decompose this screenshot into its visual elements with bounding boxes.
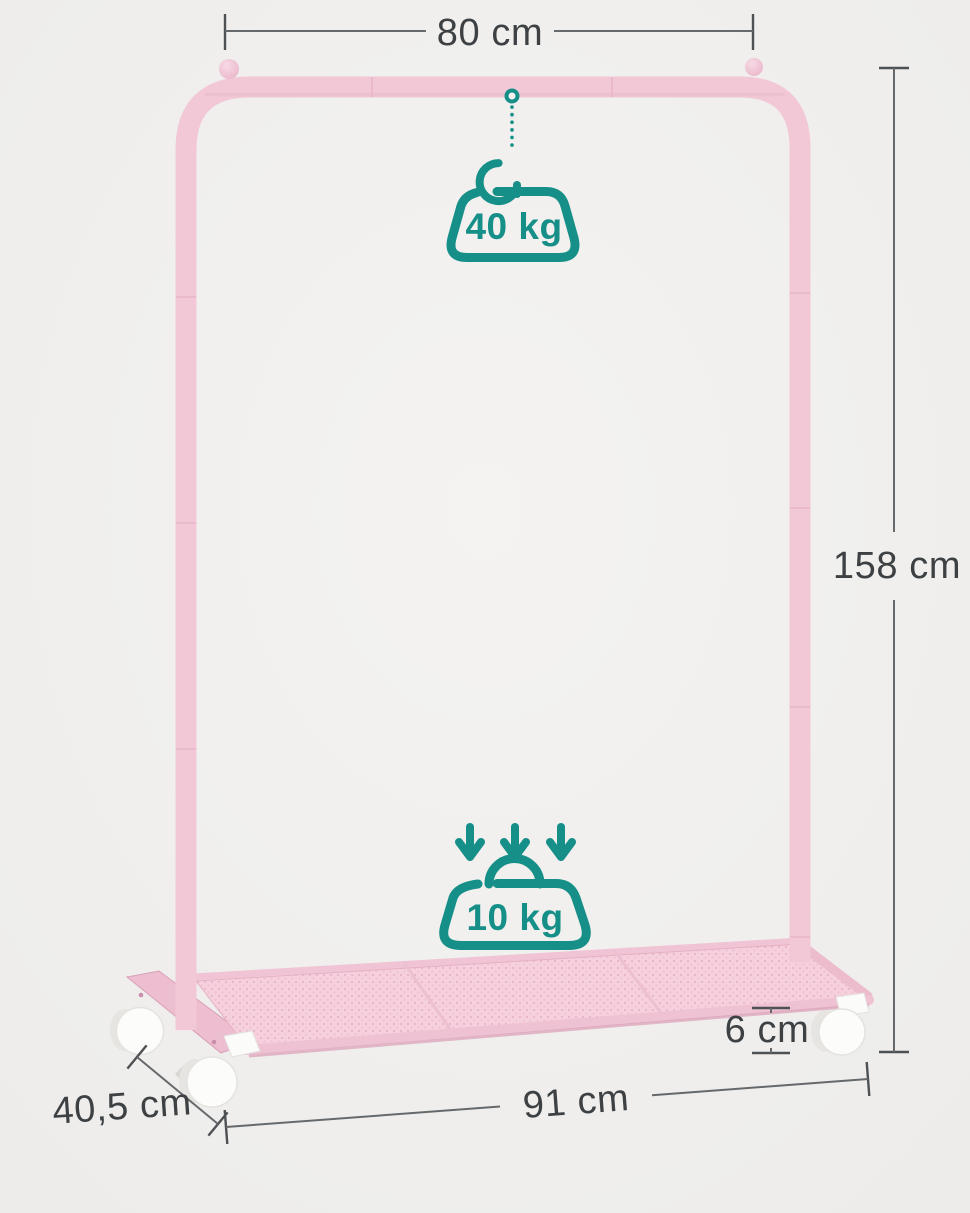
hanging-capacity-value: 40 kg — [465, 206, 562, 247]
diagram-canvas: 40 kg 10 kg 80 cm 158 cm 6 cm — [0, 0, 970, 1213]
shelf-capacity-value: 10 kg — [466, 897, 563, 938]
finial-ball-left — [219, 59, 239, 79]
dimension-shelf-clearance: 6 cm — [725, 1008, 810, 1053]
caster-wheel-front-right — [811, 1009, 865, 1055]
ring-icon — [507, 91, 518, 102]
finial-ball-right — [745, 58, 763, 76]
base-width-value: 91 cm — [521, 1077, 630, 1127]
product-diagram: 40 kg 10 kg 80 cm 158 cm 6 cm — [0, 0, 970, 1213]
screw-icon — [139, 993, 144, 998]
caster-wheel-back-left — [110, 1008, 164, 1055]
screw-icon — [212, 1040, 217, 1045]
shelf-clearance-value: 6 cm — [725, 1009, 810, 1051]
total-height-value: 158 cm — [833, 545, 961, 587]
rail-width-value: 80 cm — [437, 12, 543, 54]
